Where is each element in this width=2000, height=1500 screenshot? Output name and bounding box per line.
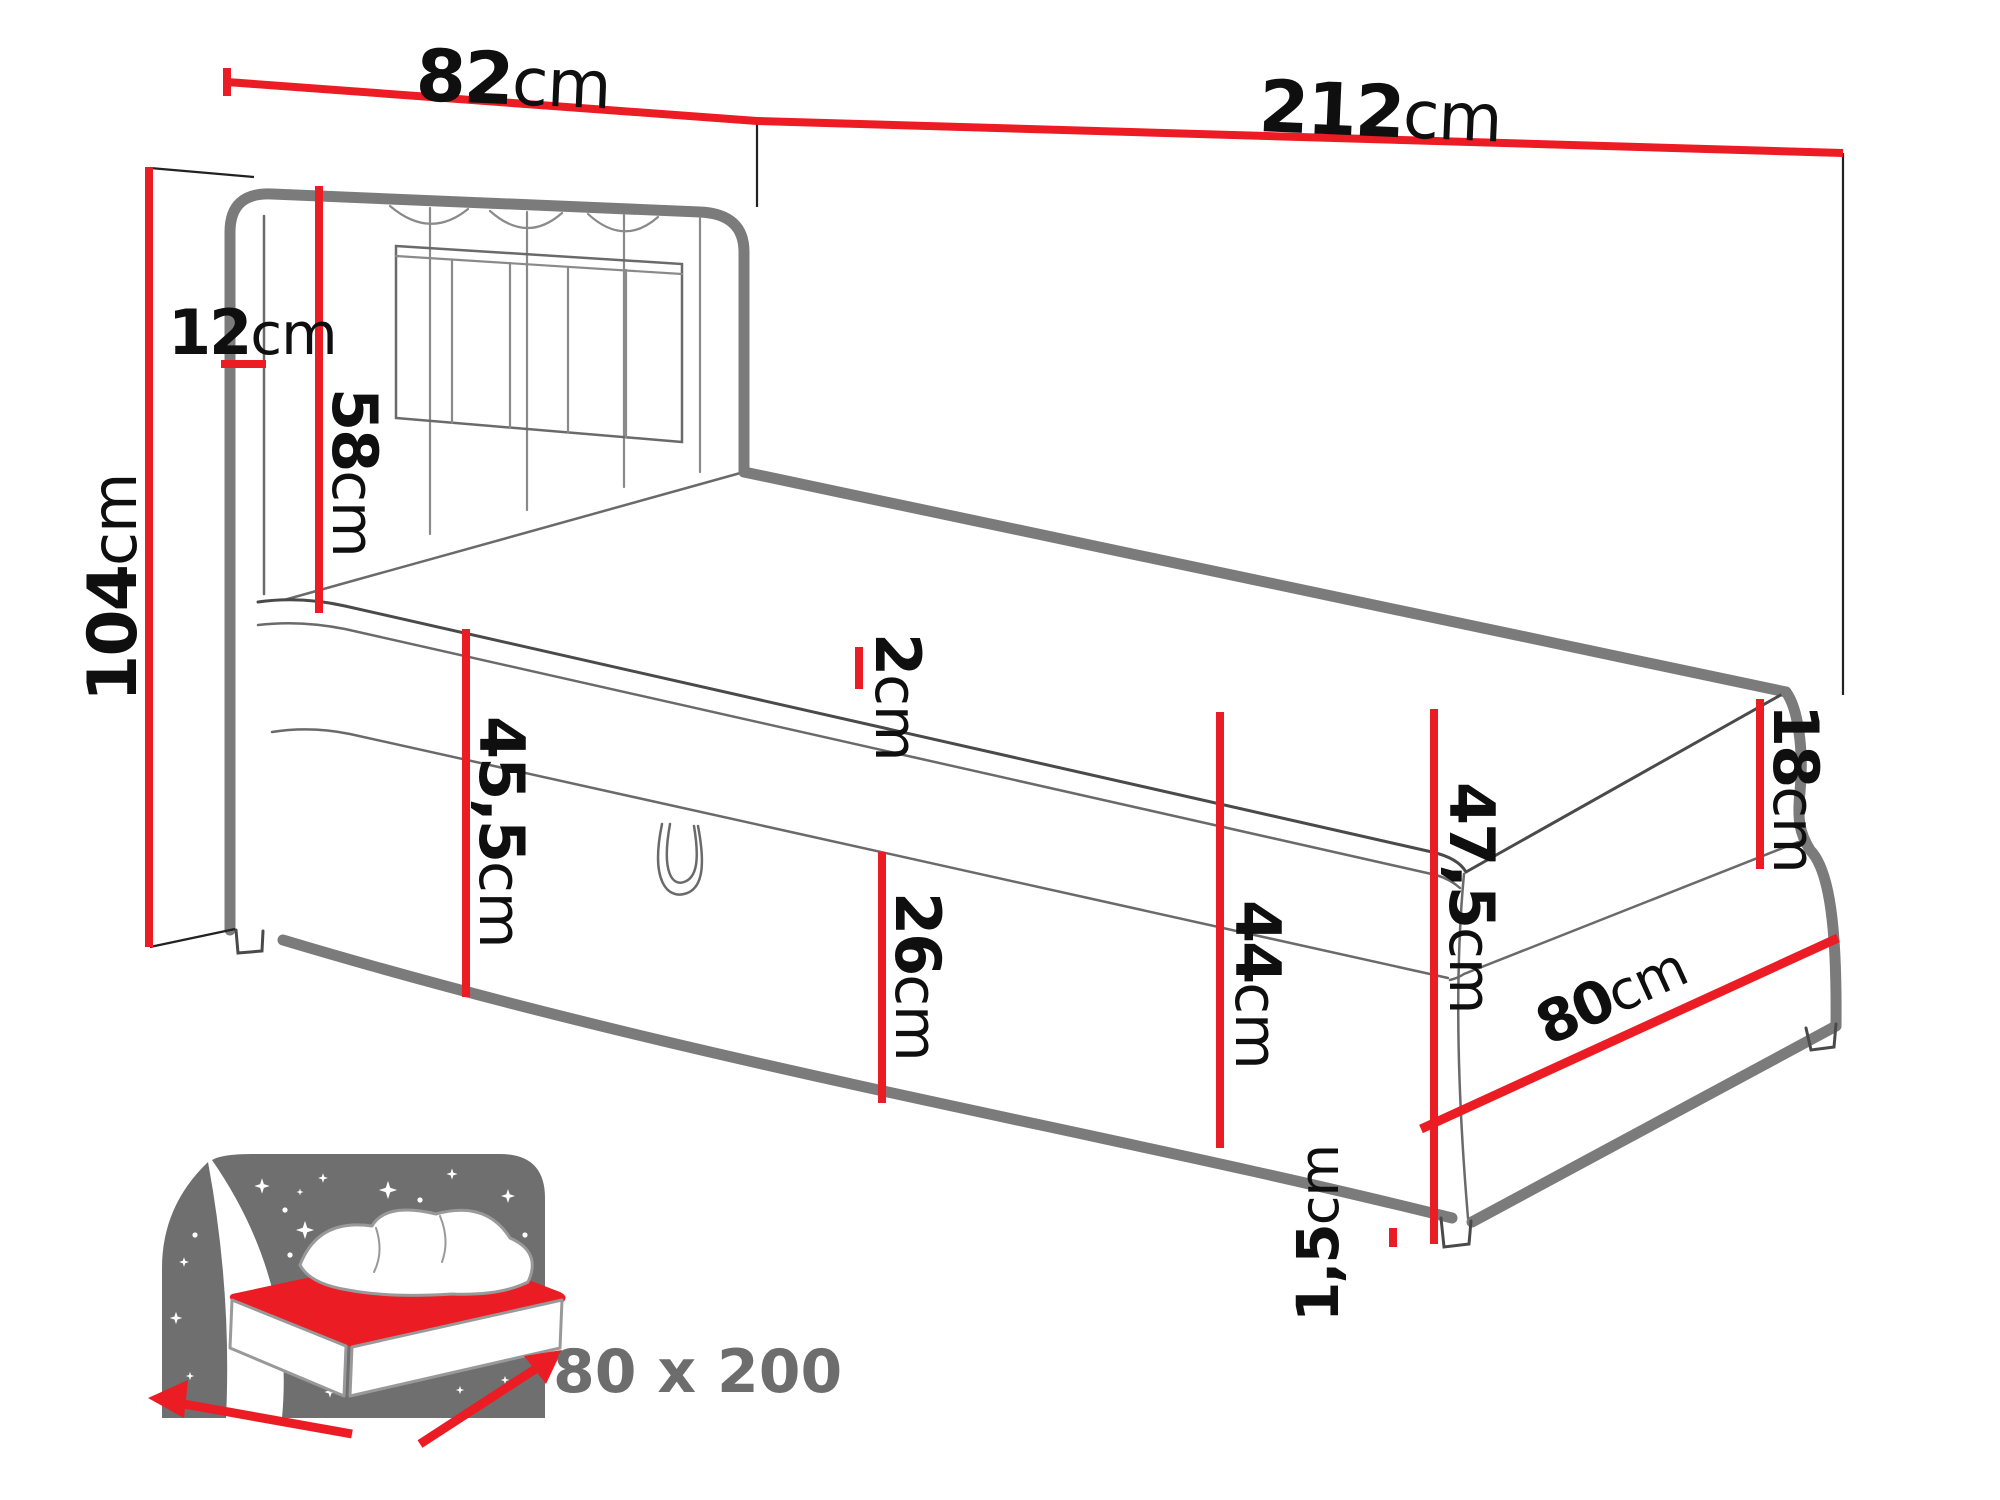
dim-label-total-length: 212cm	[1257, 64, 1503, 159]
dim-label-headboard-height: 104cm	[74, 474, 153, 702]
foot-bottom-edge	[1472, 1026, 1836, 1222]
dim-label-total-base-height: 47,5cm	[1435, 782, 1508, 1013]
leg-front	[1441, 1218, 1471, 1247]
star-dot-icon	[287, 1252, 292, 1257]
dim-label-leg-height: 1,5cm	[1284, 1145, 1352, 1322]
dim-label-headboard-width: 82cm	[414, 33, 612, 125]
bed-dimension-diagram: 82cm 212cm 104cm 12cm 58cm 45,5cm 2cm 26…	[0, 0, 2000, 1500]
icon-curtain-wedge	[162, 1162, 227, 1418]
star-dot-icon	[522, 1232, 527, 1237]
ext-headboard-bottom	[150, 929, 235, 947]
dim-label-topper-thickness: 2cm	[861, 633, 934, 761]
dim-label-storage-box: 26cm	[881, 892, 954, 1061]
star-icon	[238, 1233, 248, 1243]
dim-label-headboard-thickness: 12cm	[168, 296, 337, 369]
star-icon	[261, 1391, 269, 1399]
leg-head	[236, 930, 263, 953]
size-icon	[148, 1154, 566, 1444]
size-badge: 80 x 200	[553, 1337, 842, 1407]
handle-icon	[658, 824, 702, 895]
dim-label-mattress-thickness: 18cm	[1759, 704, 1832, 873]
star-dot-icon	[192, 1232, 197, 1237]
dim-label-side-height-foot: 44cm	[1221, 900, 1294, 1069]
ext-headboard-top	[150, 168, 254, 177]
dim-label-side-height-front: 45,5cm	[465, 716, 538, 947]
star-dot-icon	[417, 1197, 422, 1202]
mattress-foot-top-edge	[1466, 692, 1786, 872]
dim-label-panel-height: 58cm	[318, 388, 391, 557]
star-dot-icon	[282, 1207, 287, 1212]
